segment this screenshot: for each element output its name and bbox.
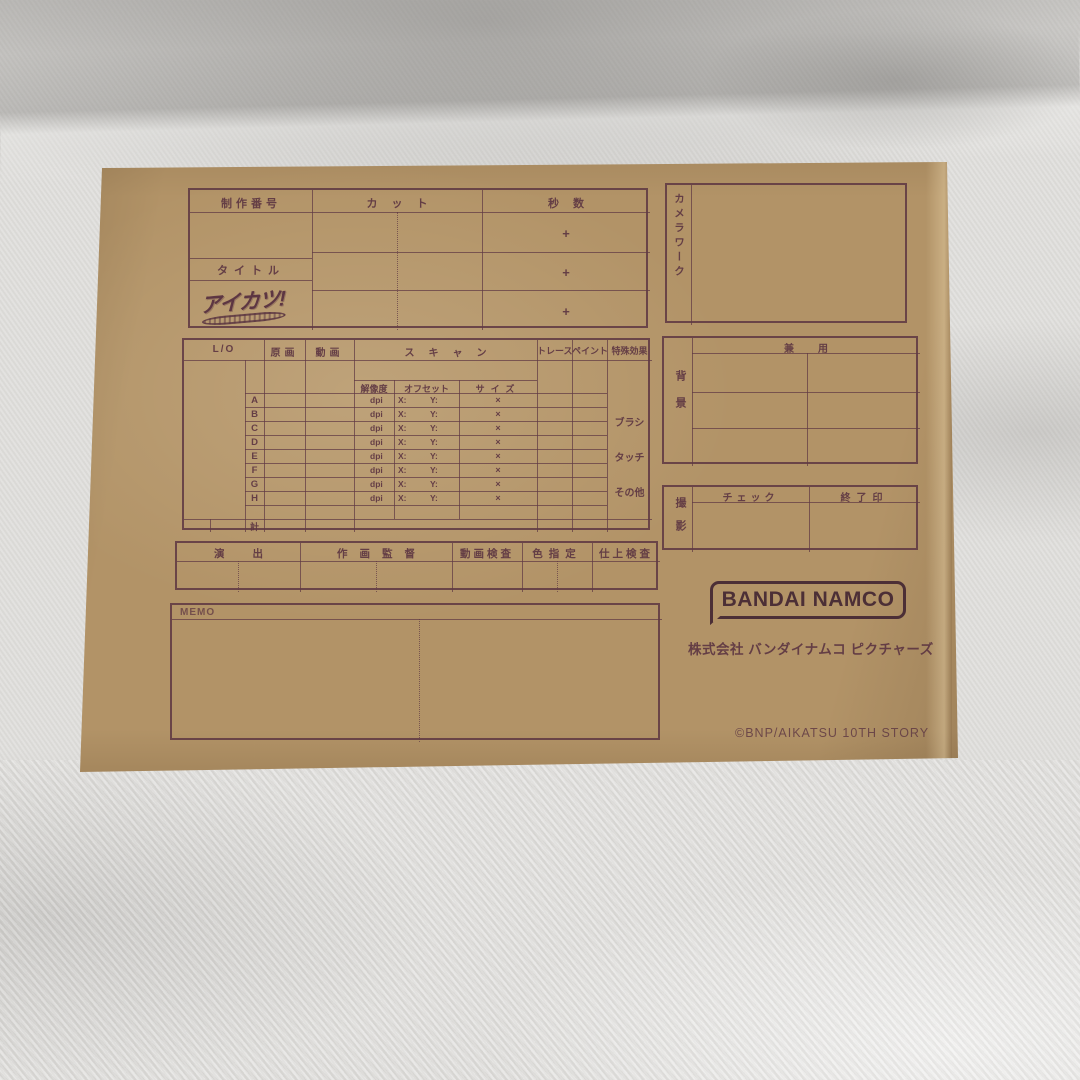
offset-x: X: — [398, 409, 407, 419]
seconds-label: 秒数 — [482, 195, 650, 211]
shooting-label: 撮影 — [672, 497, 688, 543]
dpi-label: dpi — [370, 479, 383, 489]
row-letter: G — [245, 479, 264, 490]
plus-sign: + — [482, 265, 650, 280]
envelope-edge — [926, 160, 952, 772]
row-letter: F — [245, 465, 264, 476]
size-x: × — [459, 395, 537, 405]
layout-header: L/O — [184, 344, 264, 355]
camera-work-label: カメラワーク — [672, 193, 687, 280]
resolution-subheader: 解像度 — [354, 382, 394, 395]
fabric-wrinkle — [0, 26, 1080, 184]
touch-label: タッチ — [607, 449, 652, 464]
background-label: 背景 — [672, 370, 688, 424]
row-letter: E — [245, 451, 264, 462]
materials-table: L/O 原画 動画 スキャン トレース ペイント 特殊効果 解像度 オフセット … — [182, 338, 650, 530]
camera-work-box: カメラワーク — [665, 183, 907, 323]
size-x: × — [459, 465, 537, 475]
key-animation-header: 原画 — [264, 344, 305, 359]
offset-y: Y: — [430, 465, 438, 475]
offset-y: Y: — [430, 409, 438, 419]
title-label: タイトル — [190, 262, 312, 278]
offset-y: Y: — [430, 395, 438, 405]
direction-label: 演出 — [177, 546, 300, 561]
row-letter: A — [245, 395, 264, 406]
bandai-namco-logo-tail — [710, 611, 726, 625]
background-box: 兼用 背景 — [662, 336, 918, 464]
shooting-box: チェック 終了印 撮影 — [662, 485, 918, 550]
bandai-namco-logo-text: BANDAI NAMCO — [722, 588, 895, 612]
offset-x: X: — [398, 423, 407, 433]
inbetween-check-label: 動画検査 — [452, 546, 522, 561]
cut-label: カット — [312, 195, 482, 211]
offset-y: Y: — [430, 423, 438, 433]
animation-director-label: 作画監督 — [300, 546, 452, 561]
offset-y: Y: — [430, 493, 438, 503]
total-label: 計 — [245, 520, 264, 533]
trace-header: トレース — [537, 344, 572, 357]
offset-y: Y: — [430, 451, 438, 461]
size-x: × — [459, 423, 537, 433]
memo-box: MEMO — [170, 603, 660, 740]
row-letter: D — [245, 437, 264, 448]
aikatsu-logo: アイカツ! — [200, 282, 286, 327]
fabric-weave — [0, 760, 1080, 1080]
company-name: 株式会社 バンダイナムコ ピクチャーズ — [688, 638, 928, 658]
offset-x: X: — [398, 493, 407, 503]
row-letter: B — [245, 409, 264, 420]
dpi-label: dpi — [370, 451, 383, 461]
brush-label: ブラシ — [607, 414, 652, 429]
dpi-label: dpi — [370, 423, 383, 433]
size-x: × — [459, 479, 537, 489]
offset-x: X: — [398, 437, 407, 447]
size-x: × — [459, 409, 537, 419]
offset-x: X: — [398, 465, 407, 475]
size-x: × — [459, 451, 537, 461]
memo-label: MEMO — [180, 607, 215, 618]
row-letter: C — [245, 423, 264, 434]
scan-header: スキャン — [354, 344, 537, 359]
dpi-label: dpi — [370, 409, 383, 419]
plus-sign: + — [482, 304, 650, 319]
finish-check-label: 仕上検査 — [592, 546, 660, 561]
size-x: × — [459, 437, 537, 447]
production-envelope: 制作番号 カット 秒数 タイトル + + + アイカツ! カメラワーク — [80, 160, 958, 772]
dpi-label: dpi — [370, 465, 383, 475]
dpi-label: dpi — [370, 493, 383, 503]
offset-x: X: — [398, 395, 407, 405]
dpi-label: dpi — [370, 395, 383, 405]
size-x: × — [459, 493, 537, 503]
check-label: チェック — [692, 489, 809, 504]
size-subheader: サイズ — [459, 382, 537, 395]
offset-x: X: — [398, 479, 407, 489]
shared-use-header: 兼用 — [692, 340, 920, 355]
paint-header: ペイント — [572, 344, 607, 357]
cut-info-table: 制作番号 カット 秒数 タイトル + + + アイカツ! — [188, 188, 648, 328]
other-label: その他 — [607, 484, 652, 499]
row-letter: H — [245, 493, 264, 504]
dpi-label: dpi — [370, 437, 383, 447]
staff-check-table: 演出 作画監督 動画検査 色指定 仕上検査 — [175, 541, 658, 590]
offset-y: Y: — [430, 437, 438, 447]
copyright-text: ©BNP/AIKATSU 10TH STORY — [735, 726, 929, 740]
inbetween-header: 動画 — [305, 344, 354, 359]
offset-y: Y: — [430, 479, 438, 489]
color-design-label: 色指定 — [522, 546, 592, 561]
production-number-label: 制作番号 — [190, 195, 312, 211]
offset-subheader: オフセット — [394, 382, 459, 395]
finish-stamp-label: 終了印 — [809, 489, 920, 504]
offset-x: X: — [398, 451, 407, 461]
special-effects-header: 特殊効果 — [607, 344, 652, 357]
plus-sign: + — [482, 226, 650, 241]
bandai-namco-logo: BANDAI NAMCO — [710, 581, 906, 619]
